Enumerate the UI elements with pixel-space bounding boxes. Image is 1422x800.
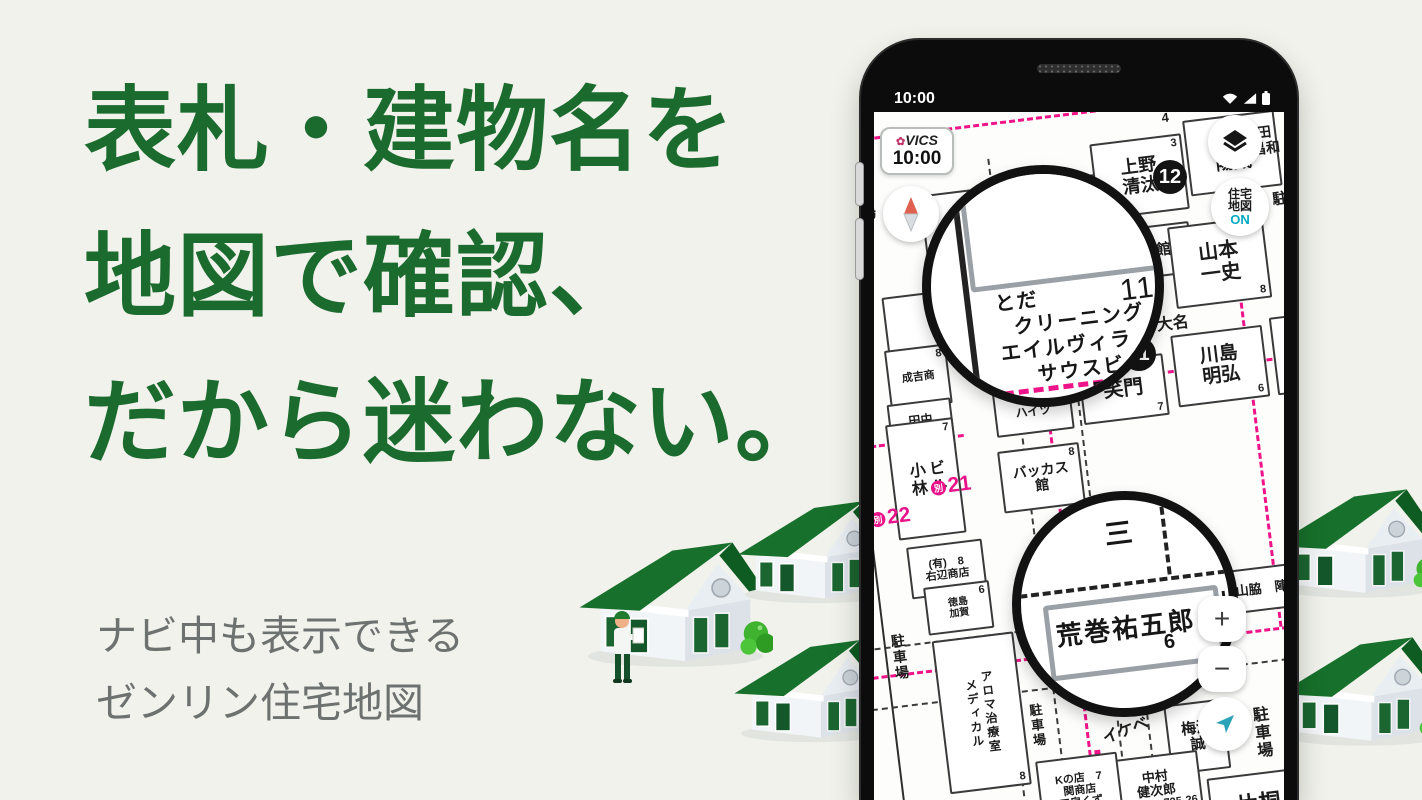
headline: 表札・建物名を 地図で確認、 だから迷わない。 <box>84 58 828 496</box>
vics-badge: ✿VICS 10:00 <box>880 127 954 175</box>
location-arrow-icon <box>1213 712 1237 736</box>
building-label: Kの店 7 関商店 工房くず <box>1035 752 1125 800</box>
map-label: 駐車場 <box>1248 705 1272 761</box>
zoom-out-button[interactable]: − <box>1198 646 1246 692</box>
building-label: 片桐725-31 <box>1206 767 1284 800</box>
wifi-icon <box>1222 92 1238 105</box>
layers-button[interactable] <box>1208 115 1262 169</box>
status-bar: 10:00 <box>874 88 1284 112</box>
vics-icon: ✿ <box>896 136 905 148</box>
toggle-state: ON <box>1230 213 1250 227</box>
map-label: 駐 <box>1272 191 1285 210</box>
building-label: 黒岩 章雄5 <box>1269 306 1284 395</box>
building-label: 徳島 加賀6 <box>923 580 994 636</box>
magnifier-callout: とだ クリーニング エイルヴィラ サウスビュー 長丘 11 <box>922 165 1164 407</box>
volume-button <box>855 162 864 206</box>
promo-banner: { "colors":{"brand_green":"#1b6b2e","sub… <box>0 0 1422 800</box>
building-label: 川島 明弘6 <box>1170 325 1270 408</box>
volume-button <box>855 218 864 280</box>
zoom-in-button[interactable]: + <box>1198 596 1246 642</box>
road-line <box>1158 495 1172 575</box>
person-illustration <box>602 608 644 686</box>
map-label: イケベ <box>1100 714 1151 748</box>
layers-icon <box>1220 128 1250 156</box>
status-time: 10:00 <box>894 90 935 108</box>
house-illustration <box>1278 616 1422 753</box>
signal-number: 別21 <box>930 472 973 501</box>
signal-number: 別22 <box>874 503 912 532</box>
map-view[interactable]: 駐車場 7 成吉商8 高倉商店1 上野 清汰3 4 山田 陽蔵 花梨館9 山本 … <box>874 112 1284 800</box>
map-label: 駐車場 <box>874 205 877 227</box>
block-marker-12: 12 <box>1153 160 1187 194</box>
map-label: 駐車場 <box>1026 703 1046 749</box>
map-label: 大名 <box>1156 314 1190 336</box>
battery-icon <box>1262 91 1270 105</box>
compass[interactable] <box>883 186 939 242</box>
signal-icon <box>1243 92 1257 105</box>
hero-section: 表札・建物名を 地図で確認、 だから迷わない。 ナビ中も表示できる ゼンリン住宅… <box>84 58 828 496</box>
housing-map-toggle[interactable]: 住宅 地図 ON <box>1211 178 1269 236</box>
compass-needle-icon <box>902 196 920 232</box>
current-location-button[interactable] <box>1198 697 1252 751</box>
map-label: 4 <box>1161 112 1170 126</box>
phone-mockup: 10:00 駐車場 7 成吉 <box>861 40 1297 800</box>
speaker-grille <box>1037 64 1121 73</box>
building-label: メディカルアロマ治療室 8 <box>932 631 1032 794</box>
